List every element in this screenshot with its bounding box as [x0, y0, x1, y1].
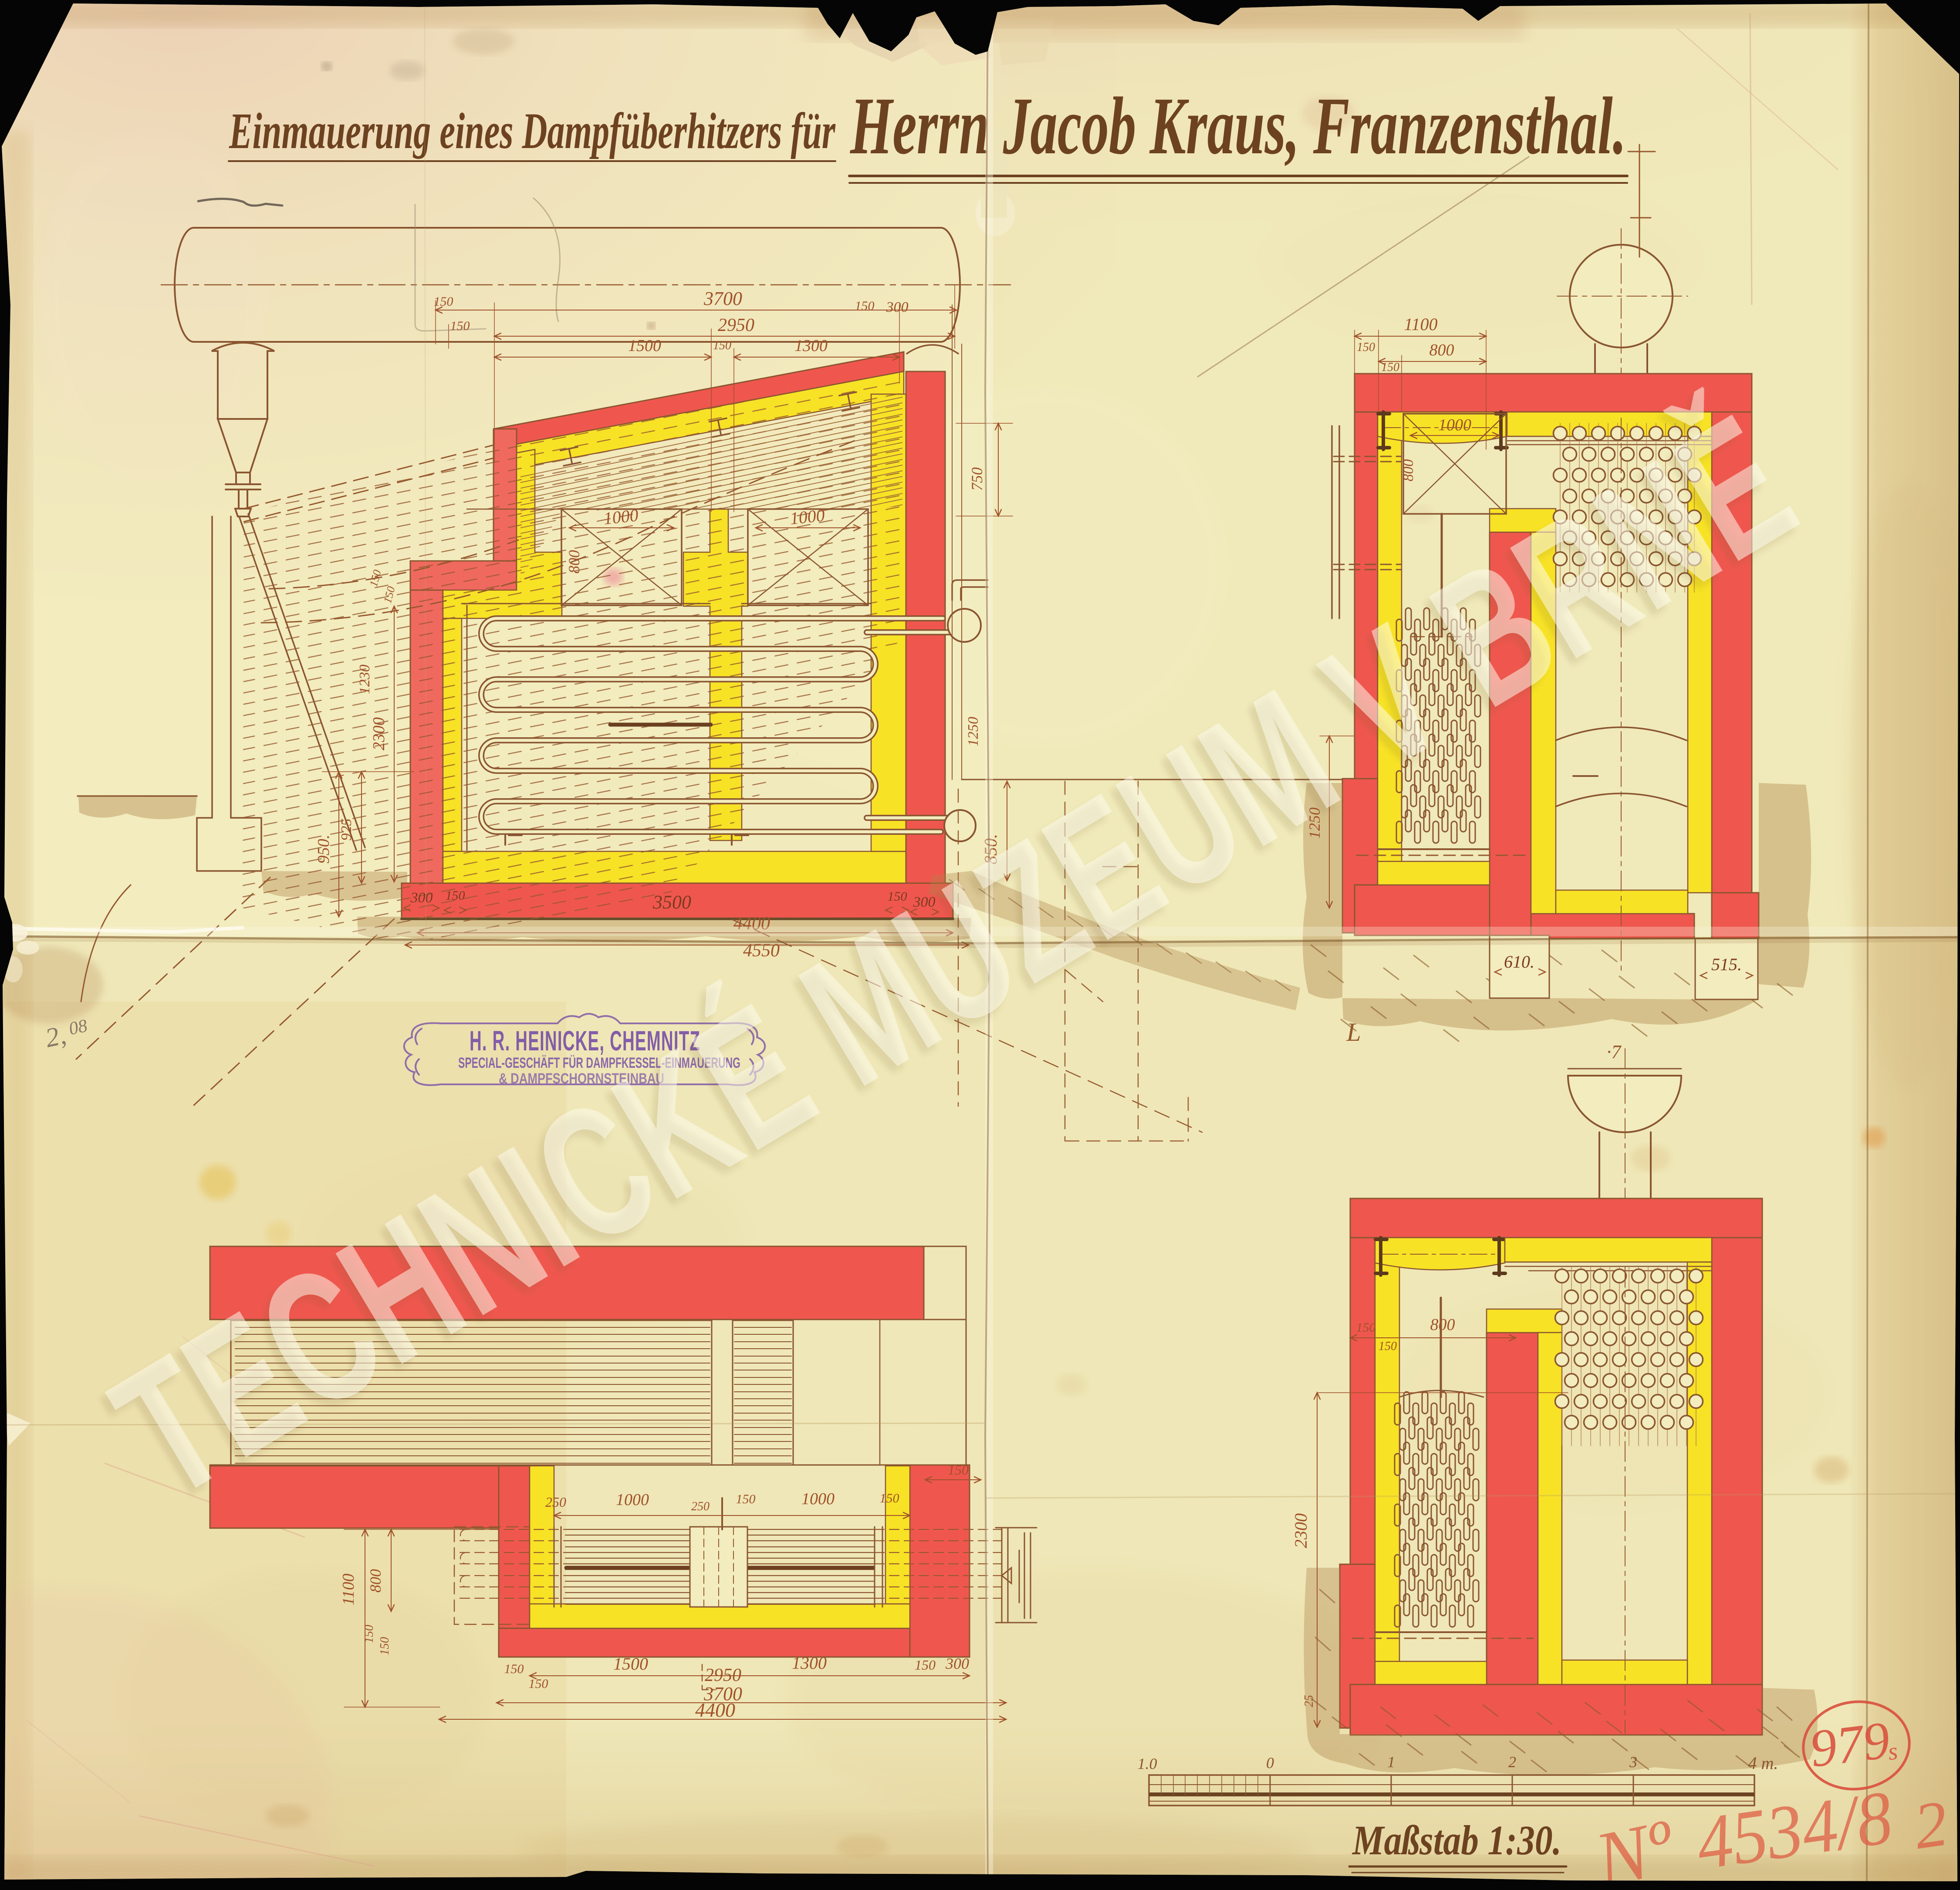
svg-text:925: 925: [338, 819, 355, 841]
svg-text:150: 150: [434, 294, 453, 309]
svg-text:150: 150: [529, 1677, 548, 1691]
svg-text:750: 750: [968, 467, 986, 491]
svg-text:1500: 1500: [628, 337, 661, 355]
svg-text:2950: 2950: [705, 1665, 741, 1685]
svg-text:800: 800: [1429, 341, 1454, 359]
svg-text:3700: 3700: [703, 288, 742, 309]
svg-text:4400: 4400: [695, 1699, 735, 1721]
svg-text:150: 150: [948, 1462, 969, 1478]
svg-text:1.0: 1.0: [1138, 1755, 1157, 1772]
svg-text:0: 0: [1266, 1754, 1274, 1772]
svg-text:150: 150: [1379, 1340, 1397, 1353]
svg-text:1300: 1300: [794, 337, 828, 355]
svg-text:L: L: [1346, 1018, 1361, 1046]
svg-text:1230: 1230: [357, 665, 373, 694]
svg-text:1250: 1250: [965, 717, 981, 746]
svg-text:1500: 1500: [613, 1654, 648, 1674]
svg-text:Einmauerung eines Dampfüberhit: Einmauerung eines Dampfüberhitzers für: [229, 102, 835, 159]
svg-text:25: 25: [1302, 1695, 1316, 1707]
svg-text:1000: 1000: [1438, 416, 1471, 434]
svg-text:800: 800: [367, 1569, 384, 1593]
svg-text:150: 150: [446, 888, 465, 903]
svg-text:3500: 3500: [652, 891, 691, 913]
svg-text:Herrn Jacob Kraus, Franzenstha: Herrn Jacob Kraus, Franzensthal.: [850, 80, 1626, 171]
svg-text:250: 250: [545, 1494, 566, 1510]
svg-text:300: 300: [945, 1655, 969, 1672]
svg-text:150: 150: [736, 1492, 756, 1506]
svg-text:150: 150: [1381, 361, 1399, 374]
svg-text:1100: 1100: [1404, 314, 1437, 334]
svg-text:4 m.: 4 m.: [1748, 1753, 1778, 1773]
svg-text:1100: 1100: [339, 1573, 358, 1605]
svg-text:300: 300: [886, 299, 909, 315]
svg-text:·7: ·7: [1607, 1041, 1622, 1063]
svg-text:150: 150: [362, 1625, 376, 1643]
svg-text:1000: 1000: [801, 1490, 835, 1508]
svg-text:1300: 1300: [792, 1653, 827, 1673]
svg-text:150: 150: [880, 1491, 899, 1505]
svg-text:3: 3: [1629, 1753, 1637, 1771]
svg-text:150: 150: [504, 1662, 524, 1676]
svg-text:979: 979: [1807, 1711, 1893, 1779]
svg-text:2950: 2950: [718, 315, 754, 335]
svg-text:2300: 2300: [1291, 1513, 1311, 1548]
svg-text:300: 300: [410, 890, 433, 906]
svg-text:150: 150: [855, 299, 875, 313]
svg-text:2300: 2300: [370, 717, 388, 750]
svg-text:1000: 1000: [616, 1491, 649, 1509]
svg-text:150: 150: [450, 319, 470, 333]
svg-text:800: 800: [1430, 1316, 1455, 1334]
svg-text:150: 150: [713, 339, 731, 352]
svg-text:610.: 610.: [1504, 952, 1534, 972]
svg-text:150: 150: [1356, 1320, 1376, 1335]
svg-text:950.: 950.: [314, 835, 333, 864]
svg-text:800: 800: [1400, 459, 1416, 482]
svg-text:Maßstab 1:30.: Maßstab 1:30.: [1352, 1817, 1561, 1863]
svg-text:150: 150: [915, 1657, 936, 1673]
svg-text:150: 150: [378, 1637, 392, 1655]
svg-text:2: 2: [1508, 1753, 1516, 1771]
svg-text:800: 800: [565, 550, 583, 574]
svg-text:515.: 515.: [1711, 955, 1742, 974]
svg-text:1: 1: [1387, 1753, 1395, 1771]
svg-text:250: 250: [691, 1500, 710, 1513]
svg-text:150: 150: [1357, 341, 1375, 354]
